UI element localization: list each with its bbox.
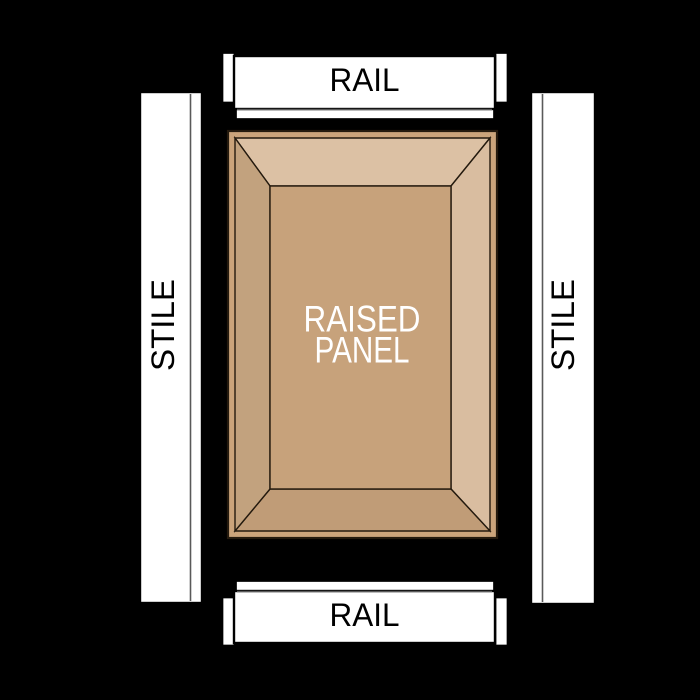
top-rail-tenon-right <box>496 53 508 103</box>
left-stile-label: STILE <box>145 279 181 371</box>
top-rail-profile-edge <box>236 109 494 119</box>
top-rail-label: RAIL <box>330 62 400 98</box>
panel-bevel-bottom <box>235 489 490 531</box>
right-stile: STILE <box>531 92 595 604</box>
panel-label-line2: PANEL <box>315 330 410 371</box>
bottom-rail-tenon-left <box>223 598 235 646</box>
bottom-rail-profile-edge <box>236 581 494 591</box>
cabinet-door-construction-diagram: RAIL RAIL STILE STILE <box>0 0 700 700</box>
panel-bevel-top <box>235 138 490 186</box>
right-stile-label: STILE <box>545 279 581 371</box>
left-stile: STILE <box>140 92 202 603</box>
bottom-rail-tenon-right <box>496 598 508 646</box>
diagram-canvas: RAIL RAIL STILE STILE <box>0 0 700 700</box>
top-rail-tenon-left <box>223 53 235 103</box>
panel-bevel-left <box>235 138 270 531</box>
bottom-rail: RAIL <box>223 581 508 646</box>
bottom-rail-label: RAIL <box>330 597 400 633</box>
raised-panel: RAISED PANEL <box>228 131 497 538</box>
panel-bevel-right <box>451 138 490 531</box>
top-rail: RAIL <box>223 53 508 119</box>
